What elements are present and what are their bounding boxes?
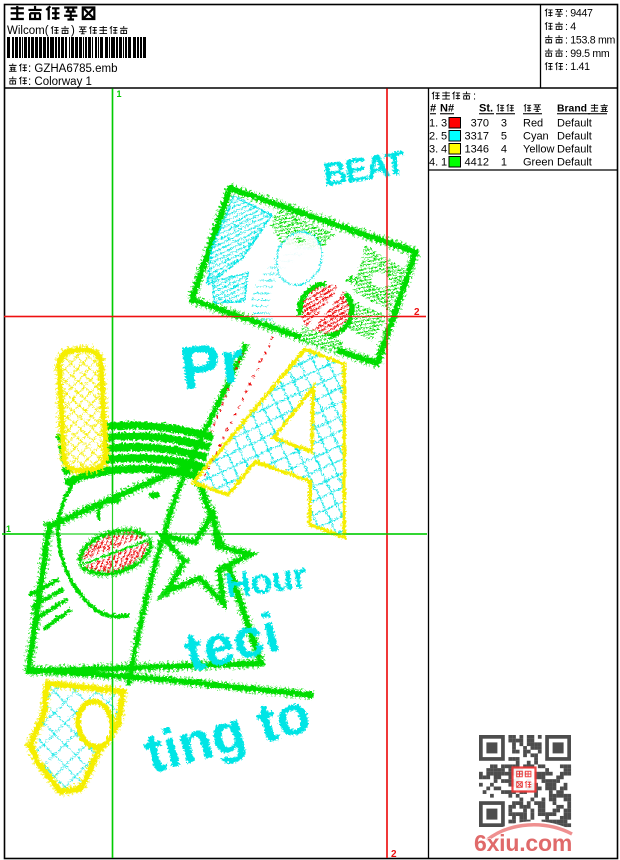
svg-text:1: 1 bbox=[117, 89, 122, 99]
svg-text:: 1.41: : 1.41 bbox=[565, 61, 590, 73]
svg-text:5: 5 bbox=[441, 131, 447, 143]
svg-text:): ) bbox=[71, 25, 75, 37]
svg-text:Wilcom(: Wilcom( bbox=[7, 25, 49, 37]
svg-text:A: A bbox=[172, 282, 418, 583]
svg-text:Red: Red bbox=[523, 118, 543, 130]
svg-text:: 4: : 4 bbox=[565, 21, 576, 33]
svg-text:4: 4 bbox=[501, 144, 507, 156]
svg-text:: 99.5 mm: : 99.5 mm bbox=[565, 48, 610, 60]
svg-text:ting to: ting to bbox=[137, 680, 315, 783]
svg-text:Brand: Brand bbox=[557, 104, 587, 115]
svg-text:5: 5 bbox=[501, 131, 507, 143]
svg-text:: 9447: : 9447 bbox=[565, 8, 593, 20]
svg-text:1: 1 bbox=[501, 157, 507, 169]
svg-text:1.: 1. bbox=[429, 118, 438, 130]
svg-text:: Colorway 1: : Colorway 1 bbox=[28, 76, 92, 88]
svg-text:4.: 4. bbox=[429, 157, 438, 169]
svg-text:3: 3 bbox=[441, 118, 447, 130]
svg-text:2.: 2. bbox=[429, 131, 438, 143]
svg-text:1: 1 bbox=[6, 524, 11, 534]
svg-text:4: 4 bbox=[441, 144, 447, 156]
svg-text:St.: St. bbox=[479, 103, 493, 115]
svg-text:BEAT: BEAT bbox=[319, 142, 406, 191]
svg-text:Default: Default bbox=[557, 144, 592, 156]
svg-text:3317: 3317 bbox=[465, 131, 489, 143]
svg-text:1346: 1346 bbox=[465, 144, 489, 156]
svg-text:1: 1 bbox=[441, 157, 447, 169]
svg-text::: : bbox=[473, 91, 476, 103]
svg-text:Yellow: Yellow bbox=[523, 144, 554, 156]
svg-text:: GZHA6785.emb: : GZHA6785.emb bbox=[28, 63, 117, 75]
svg-text:Green: Green bbox=[523, 157, 554, 169]
svg-text:4412: 4412 bbox=[465, 157, 489, 169]
svg-text:Default: Default bbox=[557, 118, 592, 130]
svg-text:2: 2 bbox=[391, 849, 397, 860]
svg-text:N#: N# bbox=[440, 103, 454, 115]
svg-text:370: 370 bbox=[471, 118, 489, 130]
svg-text:3.: 3. bbox=[429, 144, 438, 156]
svg-text:: 153.8 mm: : 153.8 mm bbox=[565, 34, 615, 46]
svg-text:Default: Default bbox=[557, 131, 592, 143]
svg-text:3: 3 bbox=[501, 118, 507, 130]
svg-text:#: # bbox=[430, 103, 436, 115]
svg-text:Default: Default bbox=[557, 157, 592, 169]
svg-text:6xiu.com: 6xiu.com bbox=[474, 830, 572, 856]
svg-text:Cyan: Cyan bbox=[523, 131, 549, 143]
